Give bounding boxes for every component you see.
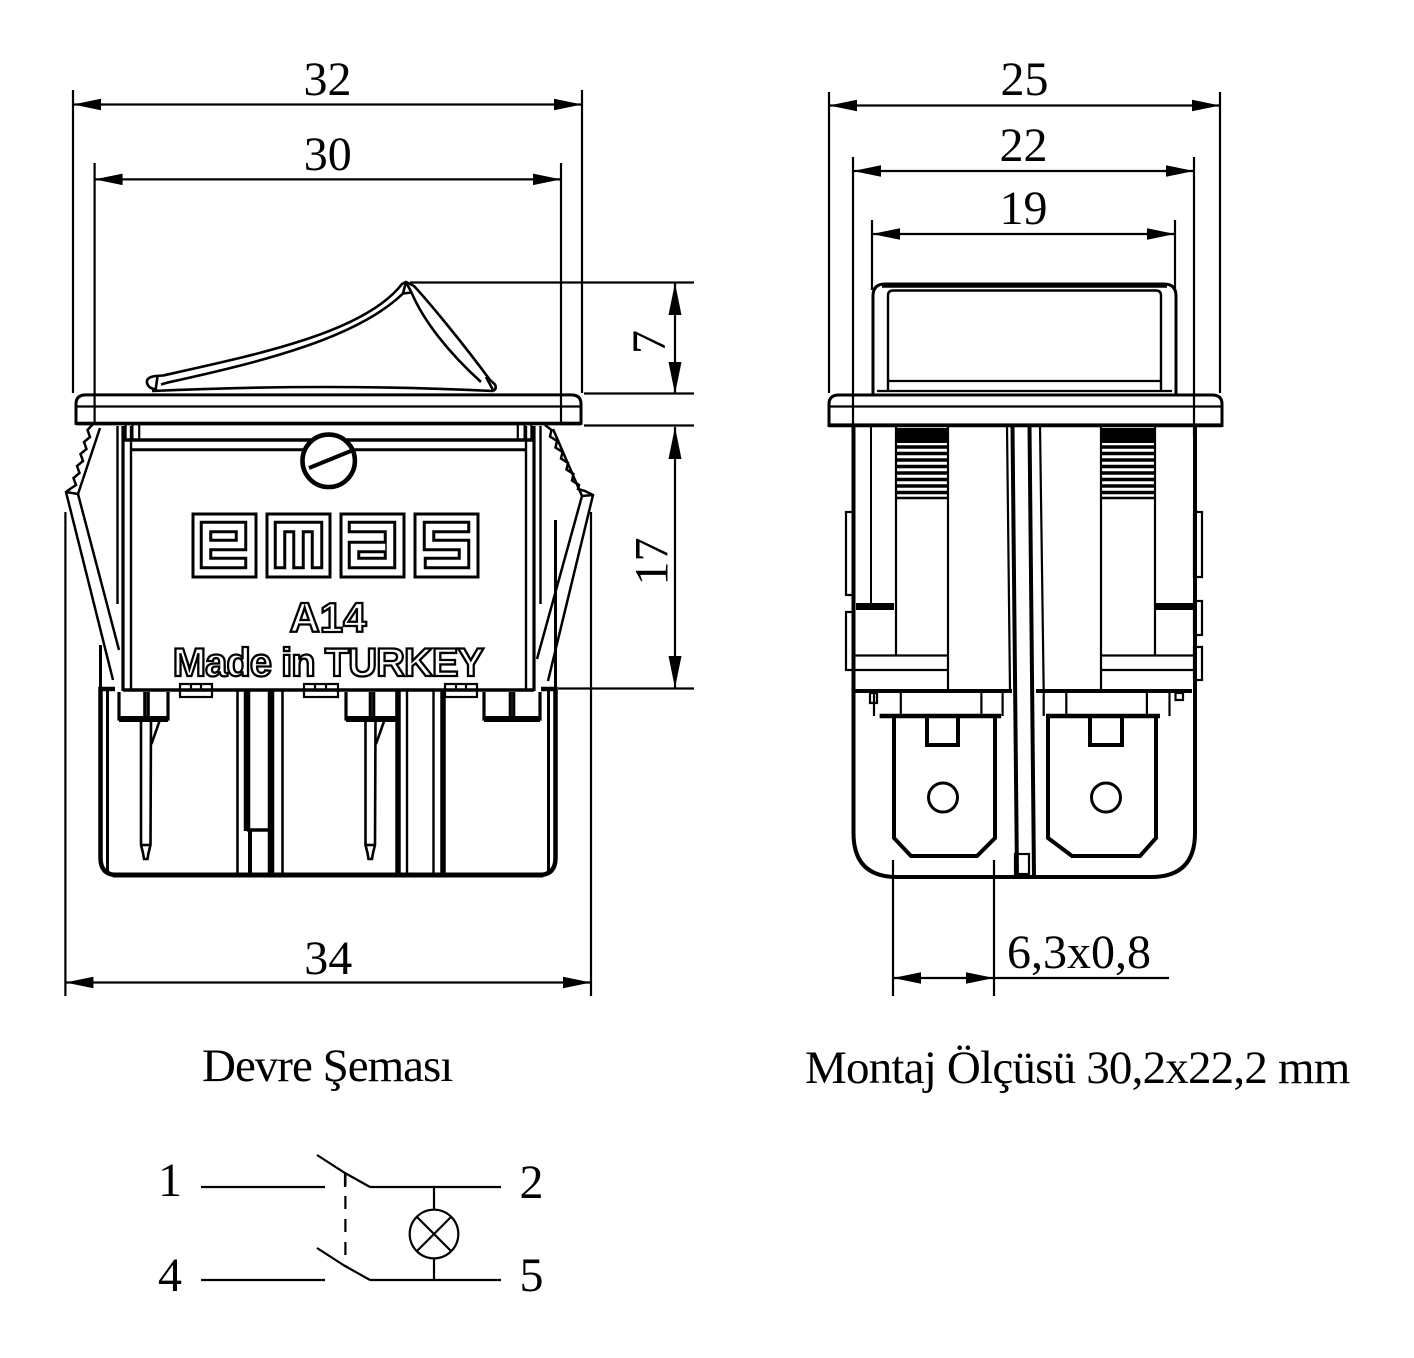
svg-text:22: 22 — [1000, 119, 1048, 172]
svg-text:32: 32 — [304, 53, 352, 106]
svg-text:Devre Şeması: Devre Şeması — [202, 1040, 453, 1092]
svg-text:A14: A14 — [289, 594, 367, 641]
svg-text:Montaj Ölçüsü 30,2x22,2 mm: Montaj Ölçüsü 30,2x22,2 mm — [805, 1042, 1350, 1094]
svg-text:Made in TURKEY: Made in TURKEY — [173, 641, 485, 685]
svg-text:25: 25 — [1001, 53, 1049, 106]
svg-text:19: 19 — [1000, 182, 1048, 235]
svg-text:5: 5 — [520, 1249, 544, 1302]
svg-text:6,3x0,8: 6,3x0,8 — [1007, 926, 1151, 979]
svg-text:17: 17 — [626, 538, 679, 586]
svg-text:1: 1 — [158, 1154, 182, 1207]
svg-text:34: 34 — [304, 932, 352, 985]
svg-text:7: 7 — [623, 330, 676, 354]
svg-text:2: 2 — [520, 1156, 544, 1209]
svg-text:30: 30 — [304, 128, 352, 181]
svg-text:4: 4 — [158, 1249, 182, 1302]
